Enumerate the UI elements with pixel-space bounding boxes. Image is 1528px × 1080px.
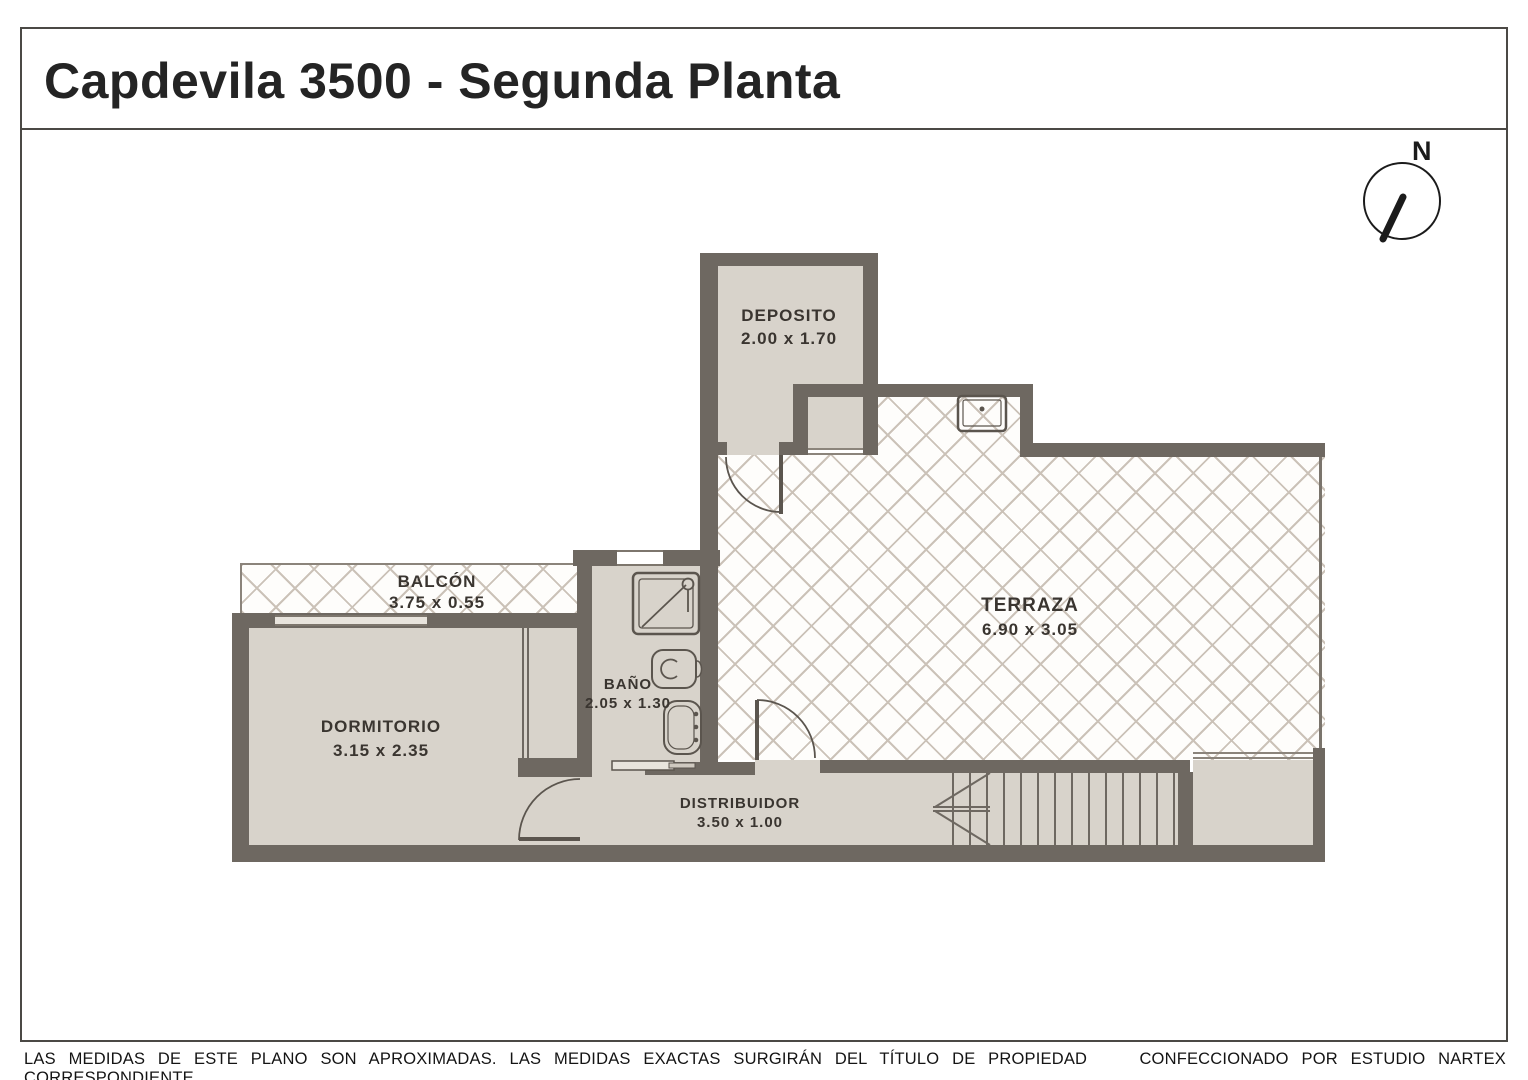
room-label-dormitorio: DORMITORIO <box>321 717 441 737</box>
wall-segment <box>645 762 755 775</box>
wall-segment <box>700 253 878 266</box>
balcon-edge-top <box>240 563 579 565</box>
footer-credit: CONFECCIONADO POR ESTUDIO NARTEX <box>1139 1050 1506 1069</box>
dormitorio-window <box>275 615 427 626</box>
footer: LAS MEDIDAS DE ESTE PLANO SON APROXIMADA… <box>24 1050 1506 1080</box>
deposito-door-threshold <box>727 442 779 455</box>
wall-segment <box>820 760 1190 773</box>
wall-segment <box>232 845 1325 862</box>
bano-window <box>617 550 663 566</box>
wall-segment <box>518 758 592 777</box>
wardrobe-line-1 <box>522 628 524 768</box>
wall-segment <box>700 442 727 455</box>
landing-box-edge-1 <box>1193 752 1313 754</box>
room-dims-deposito: 2.00 x 1.70 <box>741 329 837 349</box>
wall-segment <box>1178 772 1193 847</box>
room-label-terraza: TERRAZA <box>981 595 1079 617</box>
room-label-bano: BAÑO <box>604 676 652 693</box>
closet-window-line-1 <box>808 448 863 450</box>
footer-disclaimer: LAS MEDIDAS DE ESTE PLANO SON APROXIMADA… <box>24 1050 1099 1080</box>
wall-segment <box>863 253 878 455</box>
wardrobe-line-2 <box>527 628 529 768</box>
wall-segment <box>793 397 808 455</box>
room-dims-terraza: 6.90 x 3.05 <box>982 620 1078 640</box>
room-label-deposito: DEPOSITO <box>741 306 837 326</box>
wall-segment <box>577 550 592 758</box>
floor-plan-page: Capdevila 3500 - Segunda Planta N <box>0 0 1528 1080</box>
closet-window-line-2 <box>808 453 863 455</box>
wall-segment <box>700 253 718 775</box>
landing-box-edge-2 <box>1193 757 1313 759</box>
room-label-balcon: BALCÓN <box>398 572 477 592</box>
compass-north-label: N <box>1412 136 1432 167</box>
terraza-railing <box>1319 457 1322 750</box>
room-dims-dormitorio: 3.15 x 2.35 <box>333 741 429 761</box>
stairs-floor <box>933 772 1178 847</box>
room-label-distribuidor: DISTRIBUIDOR <box>680 795 800 812</box>
wall-segment <box>1313 748 1325 848</box>
landing-box-floor <box>1193 755 1313 845</box>
room-dims-distribuidor: 3.50 x 1.00 <box>697 814 783 831</box>
bano-door-threshold <box>592 762 645 775</box>
room-dims-balcon: 3.75 x 0.55 <box>389 593 485 613</box>
wall-segment <box>793 384 1033 397</box>
wall-segment <box>232 613 249 862</box>
room-floor-bano <box>592 566 700 762</box>
wall-segment <box>1020 443 1325 457</box>
page-title: Capdevila 3500 - Segunda Planta <box>44 52 840 110</box>
terraza-door-threshold <box>755 760 820 773</box>
wall-segment <box>663 550 720 566</box>
title-divider <box>20 128 1508 130</box>
compass-icon <box>1363 162 1441 240</box>
room-floor-small-closet <box>808 397 863 449</box>
room-dims-bano: 2.05 x 1.30 <box>585 695 671 712</box>
balcon-edge-left <box>240 563 242 613</box>
